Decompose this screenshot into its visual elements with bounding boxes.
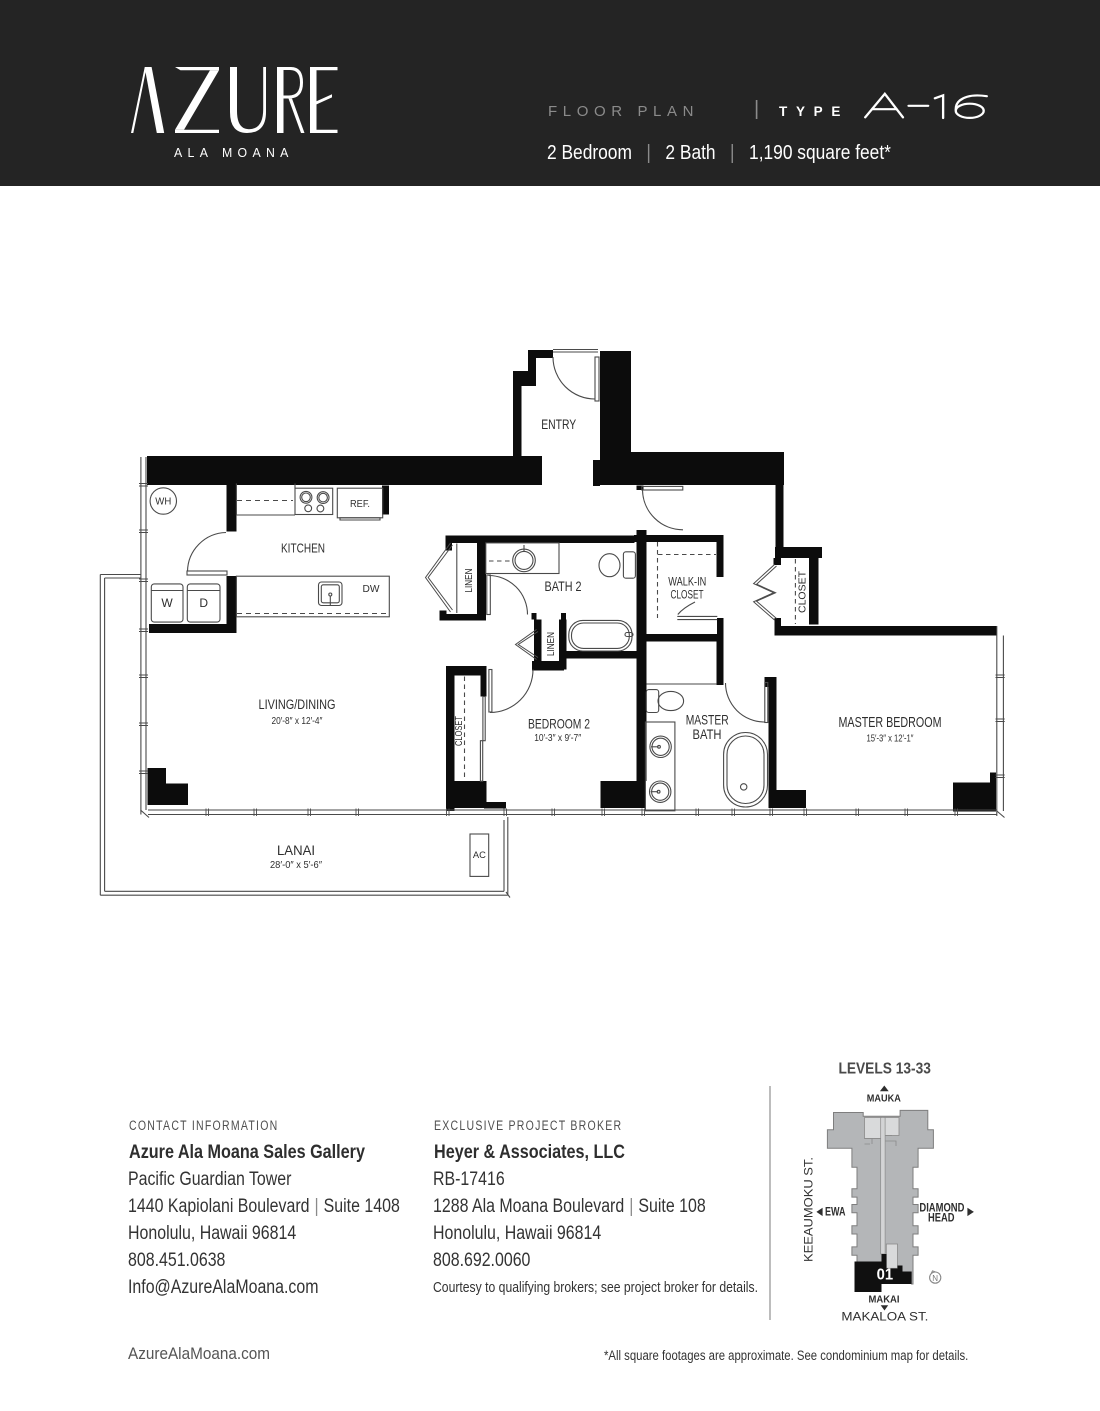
svg-text:WH: WH	[155, 497, 171, 508]
svg-text:20′-8″ x 12′-4″: 20′-8″ x 12′-4″	[272, 715, 323, 727]
svg-text:KEEAUMOKU ST.: KEEAUMOKU ST.	[804, 1157, 816, 1262]
svg-text:CLOSET: CLOSET	[797, 570, 809, 613]
svg-text:CLOSET: CLOSET	[671, 590, 704, 602]
svg-text:BEDROOM 2: BEDROOM 2	[528, 716, 590, 732]
svg-text:ENTRY: ENTRY	[541, 417, 576, 432]
svg-text:WALK-IN: WALK-IN	[668, 577, 706, 589]
svg-text:MAKALOA ST.: MAKALOA ST.	[841, 1312, 928, 1324]
svg-text:MAUKA: MAUKA	[867, 1093, 901, 1105]
svg-text:MASTER: MASTER	[686, 713, 729, 728]
svg-text:W: W	[161, 596, 173, 610]
svg-text:28′-0″ x 5′-6″: 28′-0″ x 5′-6″	[270, 859, 322, 871]
svg-text:LIVING/DINING: LIVING/DINING	[259, 697, 336, 712]
svg-text:LINEN: LINEN	[546, 632, 557, 656]
svg-text:LEVELS 13-33: LEVELS 13-33	[838, 1061, 931, 1078]
svg-text:D: D	[199, 596, 208, 610]
svg-text:EWA: EWA	[825, 1204, 846, 1218]
svg-text:REF.: REF.	[350, 499, 370, 510]
svg-text:01: 01	[877, 1267, 894, 1284]
svg-text:LINEN: LINEN	[464, 569, 475, 593]
svg-text:HEAD: HEAD	[928, 1210, 955, 1224]
svg-text:AC: AC	[473, 850, 486, 861]
svg-text:MASTER BEDROOM: MASTER BEDROOM	[839, 715, 942, 731]
svg-text:BATH: BATH	[693, 727, 722, 742]
svg-text:15′-3″ x 12′-1″: 15′-3″ x 12′-1″	[867, 733, 914, 745]
svg-text:N: N	[932, 1274, 938, 1283]
svg-text:CLOSET: CLOSET	[453, 716, 465, 746]
svg-text:10′-3″ x 9′-7″: 10′-3″ x 9′-7″	[534, 732, 581, 744]
svg-text:MAKAI: MAKAI	[869, 1294, 900, 1306]
svg-text:BATH 2: BATH 2	[545, 578, 582, 594]
svg-text:DW: DW	[363, 583, 380, 595]
svg-text:KITCHEN: KITCHEN	[281, 541, 325, 556]
svg-text:LANAI: LANAI	[277, 843, 315, 858]
